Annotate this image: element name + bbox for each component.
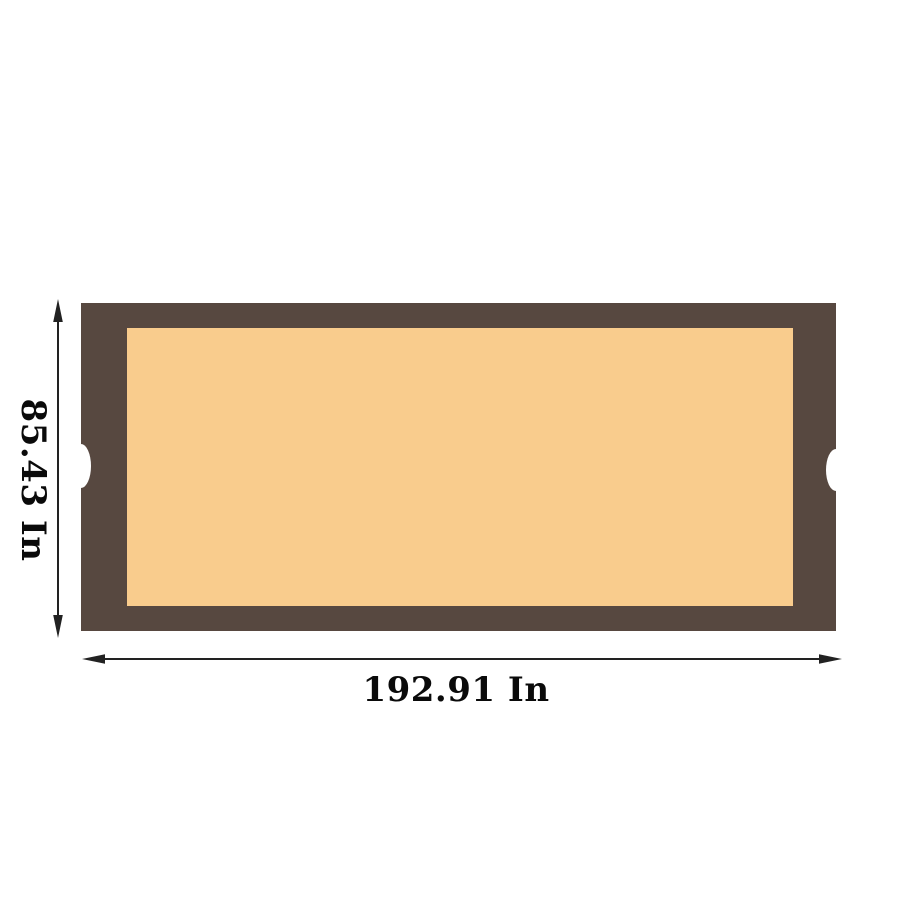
diagram-canvas: 85.43 In 192.91 In — [0, 0, 900, 900]
width-dimension-label: 192.91 In — [362, 670, 549, 710]
left-notch-cutout — [71, 444, 91, 488]
width-arrow-right-icon — [819, 654, 842, 664]
dimension-diagram: 85.43 In 192.91 In — [0, 0, 900, 900]
height-dimension-label: 85.43 In — [13, 399, 53, 562]
width-arrow-left-icon — [82, 654, 105, 664]
surface-rect — [127, 328, 793, 606]
right-notch-cutout — [826, 449, 846, 491]
height-arrow-up-icon — [53, 299, 63, 322]
height-arrow-down-icon — [53, 615, 63, 638]
height-dimension: 85.43 In — [13, 299, 63, 638]
width-dimension: 192.91 In — [82, 654, 842, 710]
